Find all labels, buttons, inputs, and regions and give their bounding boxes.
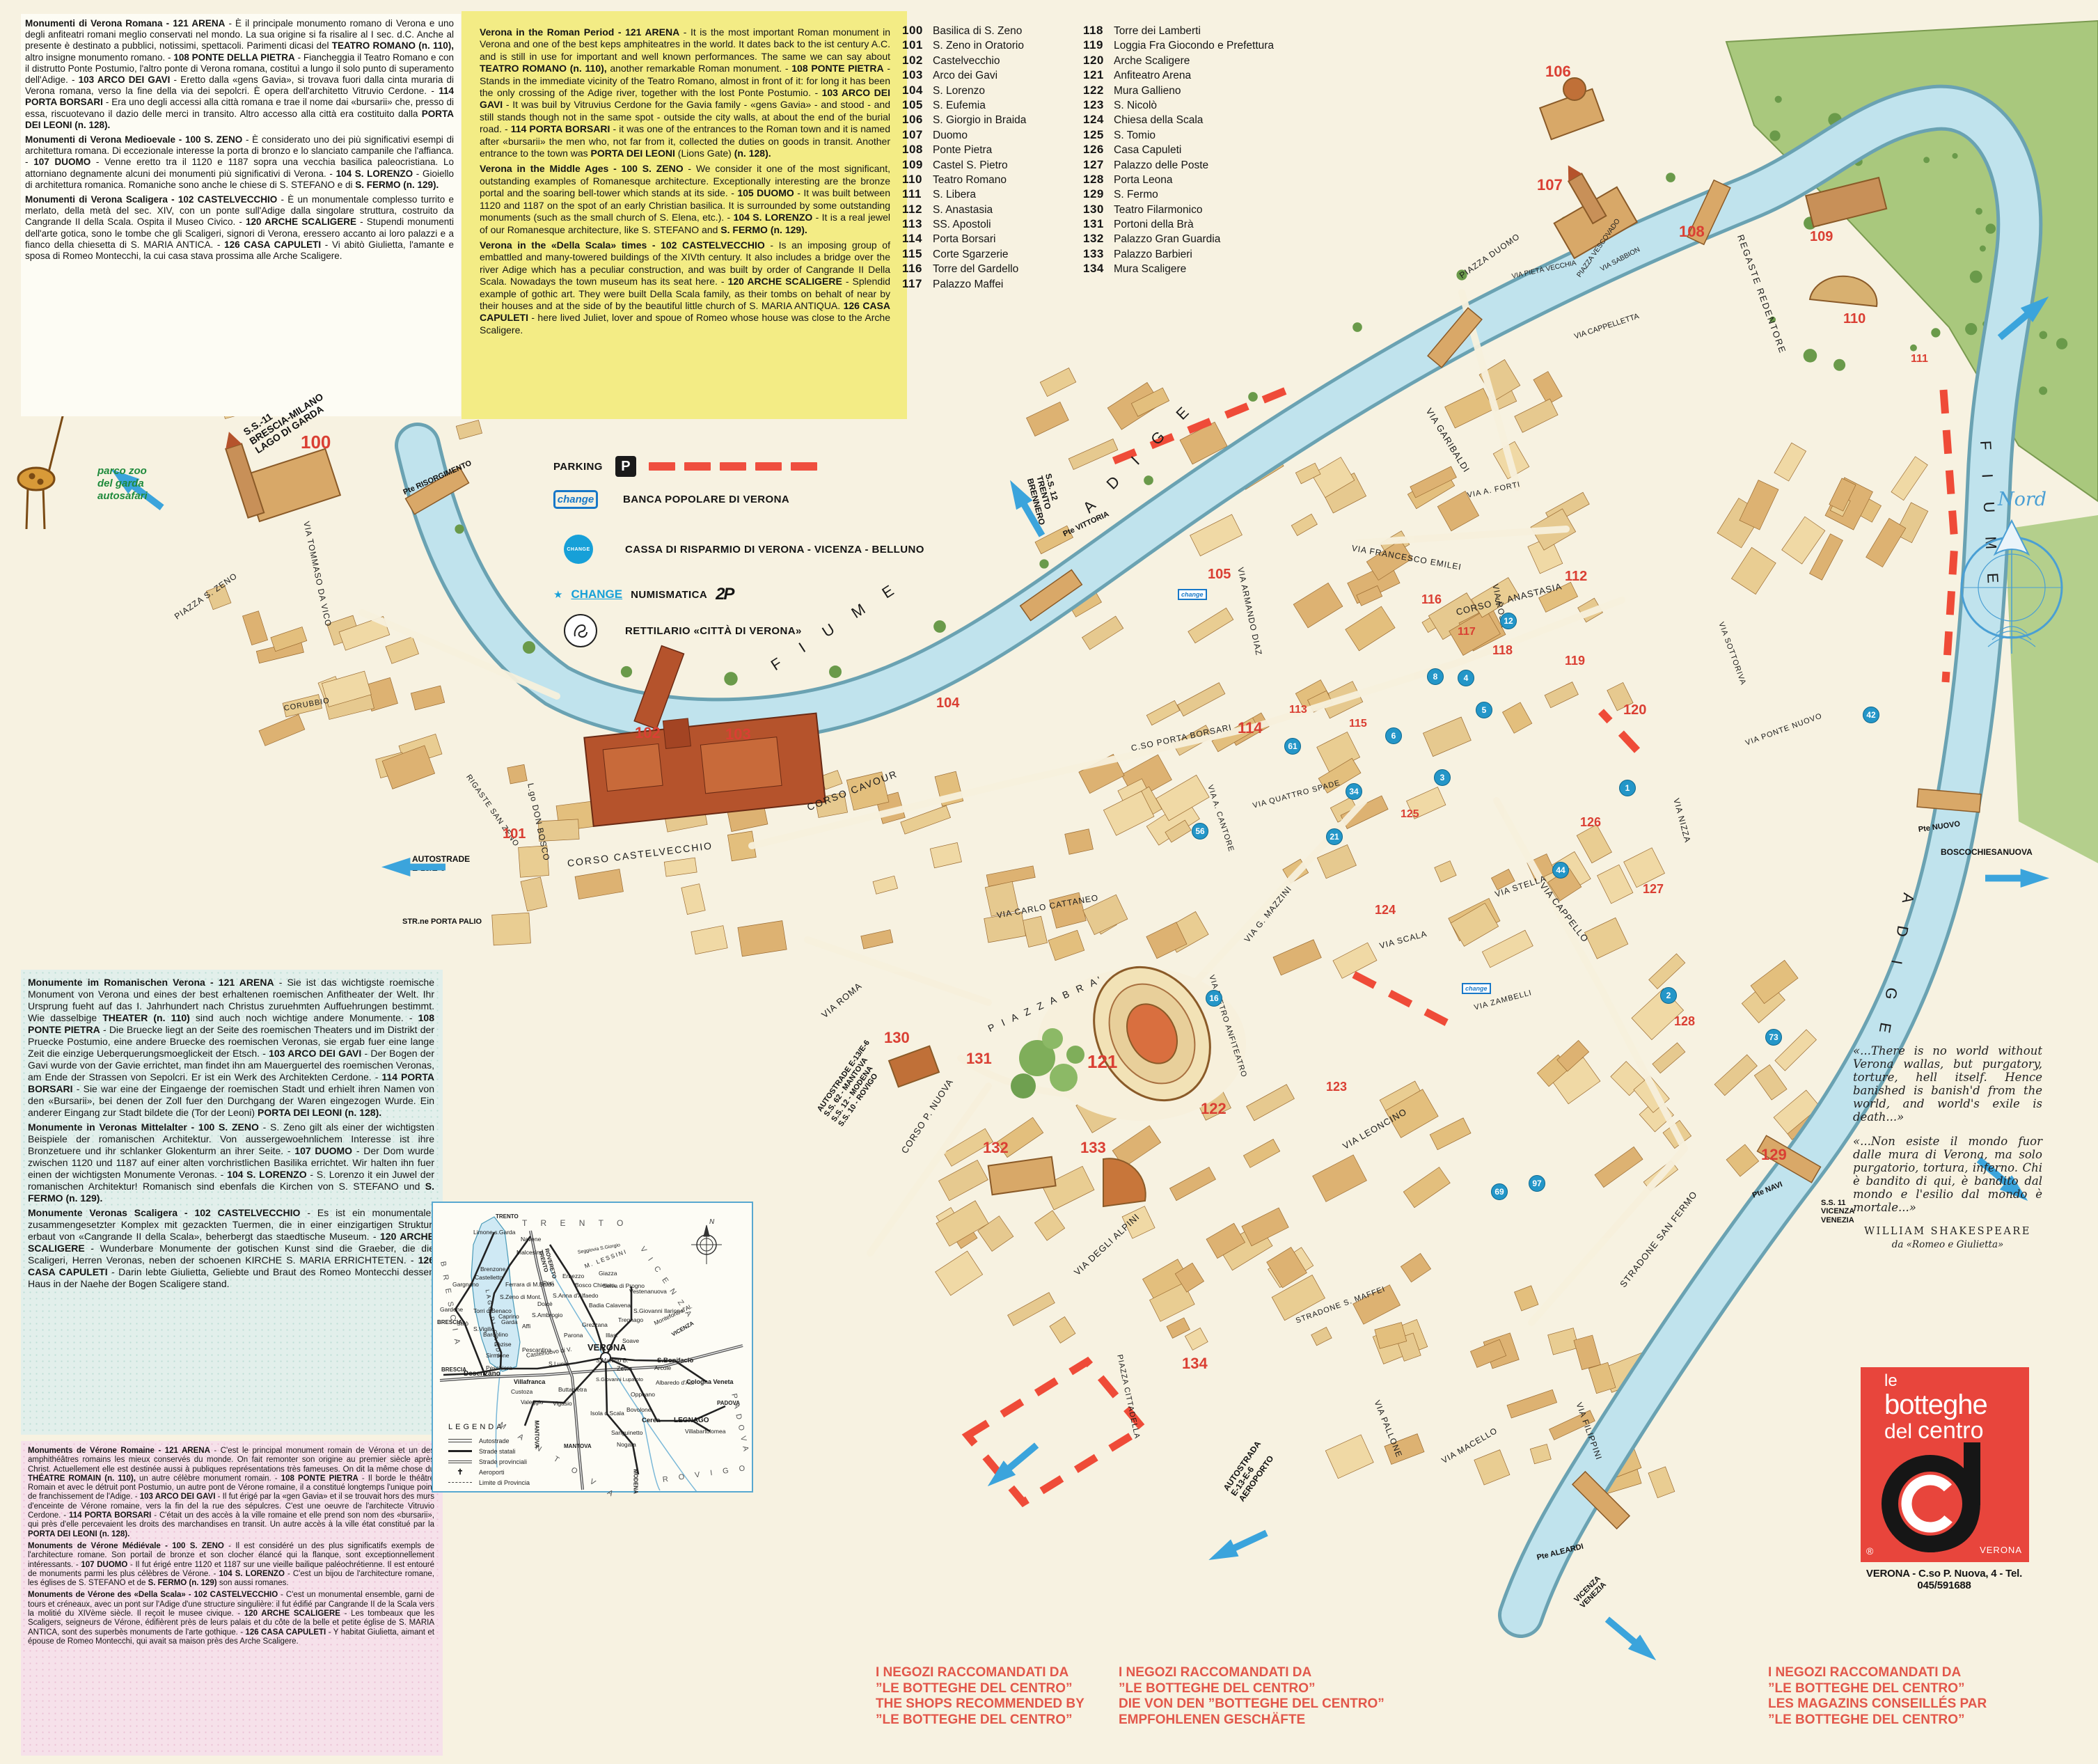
panel-english-monuments: Verona in the Roman Period - 121 ARENA -… — [462, 11, 907, 419]
monument-number: 128 — [1083, 173, 1114, 187]
key-cassa-risparmio-row: CHANGE CASSA DI RISPARMIO DI VERONA - VI… — [564, 535, 924, 564]
monument-legend-row: 134 Mura Scaligere — [1083, 262, 1274, 276]
monument-number: 106 — [902, 113, 933, 127]
monument-number: 121 — [1083, 68, 1114, 82]
footer-block-it-en: I NEGOZI RACCOMANDATI DA”LE BOTTEGHE DEL… — [876, 1665, 1085, 1728]
monument-name: Corte Sgarzerie — [933, 249, 1009, 261]
legend-row-autostrade: Autostrade — [448, 1435, 530, 1446]
monument-legend-row: 125 S. Tomio — [1083, 128, 1274, 143]
monument-name: Duomo — [933, 129, 968, 142]
monument-number: 120 — [1083, 54, 1114, 68]
quote-english: «...There is no world without Verona wal… — [1853, 1044, 2042, 1124]
inset-place-label: Arcole — [654, 1364, 671, 1371]
english-paragraph-della-scala: Verona in the «Della Scala» times - 102 … — [480, 239, 890, 336]
monument-number: 101 — [902, 38, 933, 52]
monument-legend-row: 102 Castelvecchio — [902, 54, 1026, 68]
footer-block-it-fr: I NEGOZI RACCOMANDATI DA”LE BOTTEGHE DEL… — [1768, 1665, 1987, 1728]
inset-place-label: Badia Calavena — [589, 1302, 631, 1309]
inset-place-label: Cerea — [642, 1417, 660, 1424]
german-paragraph-roman: Monumente im Romanischen Verona - 121 AR… — [28, 977, 434, 1119]
monument-legend-row: 117 Palazzo Maffei — [902, 277, 1026, 292]
parking-icon: P — [615, 456, 636, 477]
inset-place-label: Valeggio — [521, 1399, 543, 1405]
inset-place-label: Erbezzo — [562, 1273, 584, 1279]
monument-legend-row: 118 Torre dei Lamberti — [1083, 24, 1274, 38]
monument-legend-row: 108 Ponte Pietra — [902, 143, 1026, 157]
monument-name: Arche Scaligere — [1114, 55, 1190, 68]
monument-name: Casa Capuleti — [1114, 144, 1181, 157]
change-box-icon: change — [553, 490, 598, 509]
giraffe-illustration — [18, 402, 74, 529]
monument-legend-row: 104 S. Lorenzo — [902, 84, 1026, 98]
monument-name: Chiesa della Scala — [1114, 114, 1203, 127]
verona-tourist-map: Monumenti di Verona Romana - 121 ARENA -… — [0, 0, 2098, 1764]
monument-number: 112 — [902, 203, 933, 216]
monument-name: S. Giorgio in Braida — [933, 114, 1026, 127]
monument-name: Palazzo Barbieri — [1114, 249, 1192, 261]
monument-legend-row: 132 Palazzo Gran Guardia — [1083, 232, 1274, 246]
north-compass: Nord — [1957, 487, 2083, 654]
monument-name: Castel S. Pietro — [933, 159, 1008, 172]
inset-place-label: Vestenanuova — [629, 1288, 667, 1295]
footer-line: ”LE BOTTEGHE DEL CENTRO” — [876, 1712, 1085, 1728]
inset-place-label: Villafranca — [514, 1378, 545, 1385]
monument-number: 114 — [902, 232, 933, 246]
monument-name: Ponte Pietra — [933, 144, 992, 157]
inset-place-label: S.Ambrogio — [532, 1312, 562, 1318]
inset-place-label: Castelletto — [475, 1274, 503, 1281]
monument-legend-row: 113 SS. Apostoli — [902, 217, 1026, 232]
quote-attribution: WILLIAM SHAKESPEARE — [1853, 1225, 2042, 1238]
monument-legend-row: 122 Mura Gallieno — [1083, 84, 1274, 98]
monument-number: 115 — [902, 247, 933, 261]
footer-line: ”LE BOTTEGHE DEL CENTRO” — [876, 1681, 1085, 1697]
monument-number: 118 — [1083, 24, 1114, 38]
key-banca-popolare-row: change BANCA POPOLARE DI VERONA — [553, 490, 789, 509]
registered-mark: ® — [1866, 1545, 1873, 1557]
monument-name: SS. Apostoli — [933, 219, 991, 231]
panel-german-monuments: Monumente im Romanischen Verona - 121 AR… — [21, 970, 443, 1435]
logo-word-del: del — [1884, 1420, 1912, 1443]
monument-name: Basilica di S. Zeno — [933, 25, 1022, 38]
inset-place-label: Nogara — [617, 1441, 636, 1448]
monument-legend-row: 128 Porta Leona — [1083, 173, 1274, 187]
palazzo-barbieri-illustration — [1103, 1158, 1146, 1206]
inset-place-label: S.Zeno di Mont. — [500, 1293, 542, 1300]
inset-place-label: Brenzone — [480, 1266, 505, 1273]
monument-name: Teatro Filarmonico — [1114, 204, 1203, 216]
monument-legend-row: 129 S. Fermo — [1083, 187, 1274, 202]
monument-number: 100 — [902, 24, 933, 38]
monument-legend-row: 114 Porta Borsari — [902, 232, 1026, 246]
monument-legend-row: 119 Loggia Fra Giocondo e Prefettura — [1083, 38, 1274, 53]
monument-name: S. Libera — [933, 189, 976, 201]
key-parking-row: PARKING P — [553, 456, 826, 477]
monument-legend-row: 103 Arco dei Gavi — [902, 68, 1026, 83]
bdc-monogram-icon — [1861, 1442, 2029, 1557]
inset-place-label: Dolcè — [537, 1300, 553, 1307]
monument-legend-row: 110 Teatro Romano — [902, 173, 1026, 187]
teatro-filarmonico-illustration — [889, 1046, 939, 1087]
quote-italian: «...Non esiste il mondo fuor dalle mura … — [1853, 1135, 2042, 1214]
monument-name: Anfiteatro Arena — [1114, 70, 1191, 82]
quote-source: da «Romeo e Giulietta» — [1853, 1238, 2042, 1252]
inset-road-label: BRESCIA — [437, 1320, 462, 1326]
monuments-legend-column-2: 118 Torre dei Lamberti 119 Loggia Fra Gi… — [1083, 24, 1274, 277]
inset-compass-icon: N — [691, 1218, 722, 1264]
monument-number: 119 — [1083, 38, 1114, 52]
rettilario-seal-icon — [564, 614, 597, 647]
inset-place-label: Affi — [522, 1323, 530, 1330]
monuments-legend-column-1: 100 Basilica di S. Zeno 101 S. Zeno in O… — [902, 24, 1026, 292]
inset-road-label: MODENA — [632, 1469, 638, 1494]
monument-legend-row: 106 S. Giorgio in Braida — [902, 113, 1026, 127]
monument-name: S. Eufemia — [933, 100, 986, 112]
french-paragraph-roman: Monuments de Vérone Romaine - 121 ARENA … — [28, 1447, 434, 1539]
inset-place-label: Sanguinetto — [611, 1429, 642, 1436]
italian-paragraph-scaligera: Monumenti di Verona Scaligera - 102 CAST… — [25, 194, 454, 262]
legend-row-limite: Limite di Provincia — [448, 1477, 530, 1488]
san-giorgio-illustration — [1540, 78, 1604, 139]
inset-place-label: Tregnago — [618, 1316, 643, 1323]
monument-number: 132 — [1083, 232, 1114, 246]
shakespeare-quote-block: «...There is no world without Verona wal… — [1853, 1044, 2042, 1252]
footer-line: LES MAGAZINS CONSEILLÉS PAR — [1768, 1696, 1987, 1712]
panel-italian-monuments: Monumenti di Verona Romana - 121 ARENA -… — [21, 14, 461, 416]
monument-name: S. Lorenzo — [933, 85, 985, 97]
monument-name: Mura Scaligere — [1114, 263, 1186, 276]
english-paragraph-roman: Verona in the Roman Period - 121 ARENA -… — [480, 26, 890, 159]
inset-place-label: VERONA — [587, 1342, 626, 1353]
inset-place-label: Vigasio — [553, 1400, 572, 1407]
twop-logo: 2P — [716, 585, 733, 604]
monument-number: 109 — [902, 158, 933, 172]
monument-name: Teatro Romano — [933, 174, 1007, 187]
monument-number: 134 — [1083, 262, 1114, 276]
monument-number: 130 — [1083, 203, 1114, 216]
monument-name: Portoni della Brà — [1114, 219, 1194, 231]
italian-paragraph-medieval: Monumenti di Verona Medioevale - 100 S. … — [25, 134, 454, 191]
footer-line: ”LE BOTTEGHE DEL CENTRO” — [1119, 1681, 1385, 1697]
inset-place-label: Peschiera — [486, 1364, 512, 1371]
inset-place-label: LEGNAGO — [674, 1417, 709, 1424]
monument-number: 123 — [1083, 98, 1114, 112]
monument-name: Porta Leona — [1114, 174, 1172, 187]
inset-place-label: S.Martino B. — [596, 1357, 629, 1364]
inset-province-label: T R E N T O — [522, 1218, 629, 1228]
inset-place-label: Zevio — [617, 1365, 632, 1372]
inset-place-label: Grezzana — [582, 1321, 608, 1328]
monument-legend-row: 120 Arche Scaligere — [1083, 54, 1274, 68]
arena-illustration — [1037, 947, 1246, 1121]
monument-name: Palazzo delle Poste — [1114, 159, 1208, 172]
inset-place-label: Illasi — [606, 1332, 617, 1339]
monument-legend-row: 111 S. Libera — [902, 187, 1026, 202]
inset-place-label: Gargnano — [452, 1281, 479, 1288]
monument-legend-row: 131 Portoni della Brà — [1083, 217, 1274, 232]
logo-word-centro: centro — [1918, 1417, 1984, 1444]
legend-row-aeroporti: ✝Aeroporti — [448, 1467, 530, 1477]
monument-name: Castelvecchio — [933, 55, 1000, 68]
monument-name: Torre dei Lamberti — [1114, 25, 1201, 38]
footer-block-it-de: I NEGOZI RACCOMANDATI DA”LE BOTTEGHE DEL… — [1119, 1665, 1385, 1728]
inset-place-label: Giazza — [599, 1270, 617, 1277]
monument-name: Porta Borsari — [933, 233, 995, 246]
footer-line: I NEGOZI RACCOMANDATI DA — [1768, 1665, 1987, 1681]
inset-place-label: S.Giovanni Lupatoto — [596, 1376, 643, 1383]
monument-legend-row: 112 S. Anastasia — [902, 203, 1026, 217]
key-numismatica-row: ★ CHANGE NUMISMATICA 2P — [553, 585, 733, 604]
monument-name: S. Nicolò — [1114, 100, 1157, 112]
inset-place-label: Limone s.Garda — [473, 1229, 515, 1236]
english-paragraph-middle-ages: Verona in the Middle Ages - 100 S. ZENO … — [480, 163, 890, 235]
monument-number: 125 — [1083, 128, 1114, 142]
monument-legend-row: 124 Chiesa della Scala — [1083, 113, 1274, 127]
monument-number: 108 — [902, 143, 933, 157]
german-paragraph-middle-ages: Monumente in Veronas Mittelalter - 100 S… — [28, 1121, 434, 1204]
inset-road-label: MANTOVA — [564, 1444, 592, 1450]
inset-place-label: Isola d.Scala — [590, 1410, 624, 1417]
monument-number: 122 — [1083, 84, 1114, 97]
french-paragraph-della-scala: Monuments de Vérone des «Della Scala» - … — [28, 1591, 434, 1646]
inset-road-label: TRENTO — [496, 1214, 519, 1220]
monument-name: S. Anastasia — [933, 204, 993, 216]
inset-legend-title: LEGENDA — [448, 1423, 530, 1431]
banca-popolare-label: BANCA POPOLARE DI VERONA — [623, 494, 789, 505]
numismatica-label: NUMISMATICA — [631, 589, 707, 601]
monument-legend-row: 127 Palazzo delle Poste — [1083, 158, 1274, 173]
monument-number: 133 — [1083, 247, 1114, 261]
inset-place-label: Custoza — [511, 1388, 533, 1395]
inset-region-map: N VERONADesenzanoPeschieraSirmioneLazise… — [432, 1202, 753, 1493]
legend-row-statali: Strade statali — [448, 1446, 530, 1456]
inset-place-label: S.Anna d'Alfaedo — [553, 1292, 598, 1299]
legend-row-provinciali: Strade provinciali — [448, 1456, 530, 1467]
parking-label: PARKING — [553, 461, 603, 473]
german-paragraph-scaligera: Monumente Veronas Scaligera - 102 CASTEL… — [28, 1207, 434, 1290]
footer-line: DIE VON DEN ”BOTTEGHE DEL CENTRO” — [1119, 1696, 1385, 1712]
compass-rose-icon — [1957, 511, 2083, 657]
inset-place-label: Parona — [564, 1332, 583, 1339]
inset-place-label: Caprino — [498, 1313, 519, 1320]
monument-number: 129 — [1083, 187, 1114, 201]
inset-road-label: PADOVA — [717, 1401, 740, 1407]
monument-name: S. Fermo — [1114, 189, 1158, 201]
cassa-risparmio-label: CASSA DI RISPARMIO DI VERONA - VICENZA -… — [625, 544, 924, 556]
logo-word-botteghe: botteghe — [1884, 1391, 1987, 1419]
monument-name: Arco dei Gavi — [933, 70, 997, 82]
inset-legend: LEGENDA Autostrade Strade statali Strade… — [448, 1423, 530, 1488]
footer-line: ”LE BOTTEGHE DEL CENTRO” — [1768, 1712, 1987, 1728]
monument-number: 126 — [1083, 143, 1114, 157]
logo-address: VERONA - C.so P. Nuova, 4 - Tel. 045/591… — [1843, 1568, 2045, 1591]
monument-legend-row: 126 Casa Capuleti — [1083, 143, 1274, 157]
footer-line: I NEGOZI RACCOMANDATI DA — [876, 1665, 1085, 1681]
monument-legend-row: 100 Basilica di S. Zeno — [902, 24, 1026, 38]
french-paragraph-medieval: Monuments de Vérone Médiévale - 100 S. Z… — [28, 1542, 434, 1588]
teatro-romano-illustration — [1810, 276, 1877, 306]
logo-city: VERONA — [1980, 1545, 2022, 1555]
monument-number: 103 — [902, 68, 933, 82]
compass-label: Nord — [1998, 489, 2046, 510]
monument-number: 127 — [1083, 158, 1114, 172]
inset-place-label: Buttapietra — [558, 1386, 587, 1393]
inset-place-label: S.Lucia — [549, 1360, 568, 1367]
inset-place-label: Oppeano — [631, 1391, 655, 1398]
monument-name: S. Zeno in Oratorio — [933, 40, 1024, 52]
monument-name: S. Tomio — [1114, 129, 1156, 142]
monument-legend-row: 115 Corte Sgarzerie — [902, 247, 1026, 262]
monument-legend-row: 101 S. Zeno in Oratorio — [902, 38, 1026, 53]
monument-number: 107 — [902, 128, 933, 142]
italian-paragraph-roman: Monumenti di Verona Romana - 121 ARENA -… — [25, 18, 454, 131]
monument-number: 117 — [902, 277, 933, 291]
monument-name: Torre del Gardello — [933, 263, 1018, 276]
monument-number: 102 — [902, 54, 933, 68]
san-zeno-illustration — [221, 405, 340, 524]
footer-line: ”LE BOTTEGHE DEL CENTRO” — [1768, 1681, 1987, 1697]
monument-legend-row: 105 S. Eufemia — [902, 98, 1026, 113]
monument-number: 110 — [902, 173, 933, 187]
rettilario-label: RETTILARIO «CITTÀ DI VERONA» — [625, 625, 802, 637]
key-rettilario-row: RETTILARIO «CITTÀ DI VERONA» — [564, 614, 802, 647]
monument-legend-row: 133 Palazzo Barbieri — [1083, 247, 1274, 262]
monument-legend-row: 107 Duomo — [902, 128, 1026, 143]
monument-legend-row: 130 Teatro Filarmonico — [1083, 203, 1274, 217]
inset-place-label: Soave — [622, 1337, 639, 1344]
monument-number: 113 — [902, 217, 933, 231]
monument-number: 111 — [902, 187, 933, 201]
inset-place-label: Villabartolomea — [685, 1428, 725, 1435]
monument-number: 124 — [1083, 113, 1114, 127]
monument-number: 105 — [902, 98, 933, 112]
inset-place-label: S.Bonifacio — [657, 1357, 693, 1364]
monument-name: Loggia Fra Giocondo e Prefettura — [1114, 40, 1274, 52]
inset-place-label: Navene — [521, 1236, 541, 1243]
footer-line: EMPFOHLENEN GESCHÄFTE — [1119, 1712, 1385, 1728]
botteghe-del-centro-logo: le botteghe delcentro ® VERONA — [1861, 1367, 2029, 1562]
monument-number: 104 — [902, 84, 933, 97]
change-circle-icon: CHANGE — [564, 535, 593, 564]
monument-legend-row: 123 S. Nicolò — [1083, 98, 1274, 113]
svg-text:N: N — [709, 1218, 715, 1226]
footer-line: I NEGOZI RACCOMANDATI DA — [1119, 1665, 1385, 1681]
inset-road-label: MANTOVA — [533, 1420, 539, 1448]
monument-legend-row: 109 Castel S. Pietro — [902, 158, 1026, 173]
inset-road-label: BRESCIA — [441, 1367, 466, 1373]
inset-place-label: Cologna Veneta — [686, 1378, 734, 1385]
monument-name: Palazzo Gran Guardia — [1114, 233, 1220, 246]
monument-name: Mura Gallieno — [1114, 85, 1181, 97]
inset-place-label: Bovolone — [626, 1406, 651, 1413]
logo-word-le: le — [1884, 1373, 1987, 1389]
change-word: CHANGE — [571, 588, 622, 601]
monument-number: 131 — [1083, 217, 1114, 231]
star-icon: ★ — [553, 588, 562, 601]
monument-name: Palazzo Maffei — [933, 278, 1003, 291]
footer-line: THE SHOPS RECOMMENDED BY — [876, 1696, 1085, 1712]
zoo-note: parco zoo del garda autosafari — [97, 465, 148, 503]
monument-legend-row: 121 Anfiteatro Arena — [1083, 68, 1274, 83]
panel-french-monuments: Monuments de Vérone Romaine - 121 ARENA … — [21, 1441, 443, 1756]
monument-legend-row: 116 Torre del Gardello — [902, 262, 1026, 276]
monument-number: 116 — [902, 262, 933, 276]
